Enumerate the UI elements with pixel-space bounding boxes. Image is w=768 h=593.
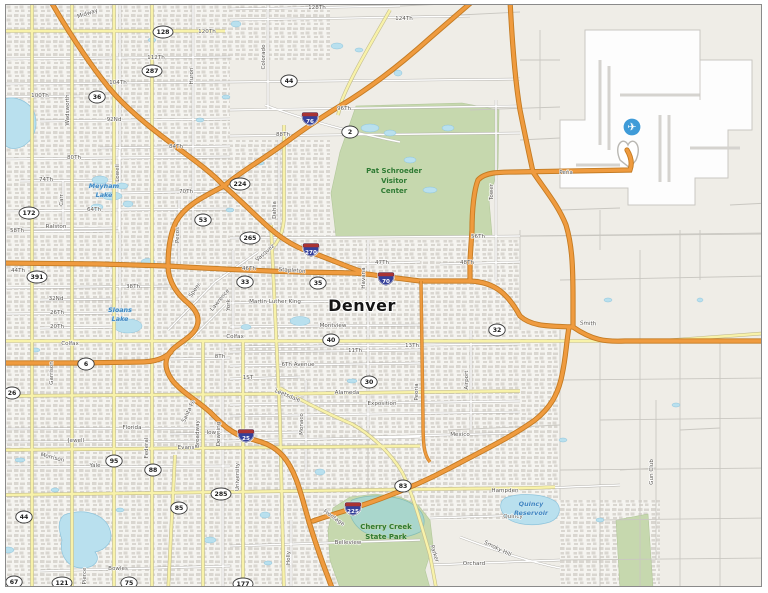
- street-label: 104Th: [109, 80, 127, 86]
- street-label: Smith: [580, 321, 597, 328]
- street-label: 44Th: [11, 268, 26, 274]
- water-label: Lake: [96, 191, 113, 199]
- street-label: 1ST: [243, 375, 254, 381]
- route-shield-85: 85: [171, 502, 187, 514]
- street-label: 58Th: [10, 228, 25, 234]
- svg-text:26: 26: [8, 390, 17, 397]
- svg-text:265: 265: [244, 235, 257, 242]
- street-label: 38Th: [126, 284, 141, 290]
- svg-text:36: 36: [93, 94, 102, 101]
- pond: [404, 157, 416, 163]
- street-label: Peña: [559, 170, 573, 176]
- map-layers: ✈120Th128Th124Th112Th104Th100Th96Th92Nd8…: [0, 0, 768, 593]
- street-label: Holly: [286, 550, 292, 565]
- pond: [260, 512, 270, 518]
- water-label: Meyham: [89, 182, 120, 190]
- svg-text:40: 40: [327, 337, 336, 344]
- street-label: 26Th: [50, 310, 65, 316]
- route-shield-265: 265: [240, 232, 260, 244]
- route-shield-172: 172: [19, 207, 39, 219]
- svg-text:30: 30: [365, 379, 374, 386]
- pond: [15, 458, 25, 462]
- route-shield-32: 32: [489, 324, 505, 336]
- svg-text:285: 285: [215, 491, 228, 498]
- pond: [559, 438, 567, 442]
- street-label: Airport: [464, 370, 470, 390]
- street-label: Colfax: [61, 341, 79, 347]
- street-label: Pecos: [175, 227, 181, 243]
- svg-text:67: 67: [10, 579, 19, 586]
- pond: [204, 537, 216, 543]
- street-label: Evans: [178, 445, 195, 451]
- route-shield-36: 36: [89, 91, 105, 103]
- street-label: Ralston: [46, 224, 67, 230]
- svg-text:88: 88: [149, 467, 158, 474]
- pond: [331, 43, 343, 49]
- water-label: Sloans: [108, 306, 132, 314]
- denver-map-canvas[interactable]: ✈120Th128Th124Th112Th104Th100Th96Th92Nd8…: [0, 0, 768, 593]
- pond: [442, 125, 454, 131]
- street-label: University: [235, 462, 241, 491]
- city-label: Denver: [328, 296, 396, 315]
- interstate-shield-25: 25: [238, 430, 254, 443]
- street-label: Lowell: [115, 164, 121, 182]
- street-label: Exposition: [367, 401, 396, 407]
- route-shield-40: 40: [323, 334, 339, 346]
- street-label: 32Nd: [49, 296, 64, 302]
- park-label: Center: [381, 187, 408, 195]
- street-label: Hampden: [491, 488, 519, 494]
- map-page: ✈120Th128Th124Th112Th104Th100Th96Th92Nd8…: [0, 0, 768, 593]
- street-label: Dahlia: [272, 201, 278, 219]
- street-label: 128Th: [308, 5, 326, 11]
- airplane-icon: ✈: [623, 118, 641, 136]
- street-label: 20Th: [50, 324, 65, 330]
- svg-text:225: 225: [347, 509, 359, 515]
- street-label: Martin Luther King: [249, 299, 301, 305]
- svg-text:25: 25: [242, 436, 250, 442]
- water-label: Quincy: [519, 500, 545, 508]
- park-label: Cherry Creek: [360, 523, 412, 531]
- pond: [347, 379, 357, 383]
- pond: [361, 124, 379, 132]
- svg-text:287: 287: [146, 68, 159, 75]
- svg-text:95: 95: [110, 458, 119, 465]
- street-label: 8Th: [215, 354, 226, 360]
- route-shield-75: 75: [121, 577, 137, 589]
- pond: [241, 325, 251, 330]
- street-label: 64Th: [87, 207, 102, 213]
- street-label: Mexico: [450, 432, 470, 438]
- route-shield-95: 95: [106, 455, 122, 467]
- route-shield-6: 6: [78, 358, 94, 370]
- street-label: 46Th: [242, 266, 257, 272]
- route-shield-88: 88: [145, 464, 161, 476]
- route-shield-121: 121: [52, 577, 72, 589]
- street-label: 80Th: [67, 155, 82, 161]
- svg-text:44: 44: [20, 514, 29, 521]
- street-label: 112Th: [147, 55, 165, 61]
- street-label: Orchard: [463, 561, 486, 567]
- street-label: Colfax: [226, 334, 244, 340]
- svg-text:35: 35: [314, 280, 323, 287]
- route-shield-2: 2: [342, 126, 358, 138]
- interstate-shield-76: 76: [302, 113, 318, 126]
- svg-text:76: 76: [306, 119, 314, 125]
- pond: [394, 70, 402, 76]
- street-label: Gun Club: [649, 459, 655, 485]
- interstate-shield-270: 270: [303, 244, 319, 257]
- route-shield-224: 224: [230, 178, 250, 190]
- street-label: Broadway: [195, 419, 201, 447]
- street-label: 56Th: [471, 234, 486, 240]
- svg-text:53: 53: [199, 217, 208, 224]
- street-label: Yale: [88, 463, 101, 469]
- street-label: Tower: [489, 183, 495, 201]
- street-label: Wadsworth: [65, 94, 71, 126]
- street-label: Bowles: [108, 566, 128, 572]
- water-label: Lake: [112, 315, 129, 323]
- route-shield-53: 53: [195, 214, 211, 226]
- route-shield-391: 391: [27, 271, 47, 283]
- street-label: 124Th: [395, 16, 413, 22]
- street-label: 92Nd: [107, 117, 122, 123]
- street-label: Garrison: [49, 361, 55, 385]
- route-shield-285: 285: [211, 488, 231, 500]
- street-label: 11Th: [348, 348, 363, 354]
- pond: [231, 21, 241, 27]
- street-label: 84Th: [169, 144, 184, 150]
- route-shield-83: 83: [395, 480, 411, 492]
- street-label: Monaco: [299, 413, 305, 435]
- svg-text:128: 128: [157, 29, 170, 36]
- route-shield-128: 128: [153, 26, 173, 38]
- street-label: Havana: [361, 267, 367, 288]
- pond: [196, 118, 204, 122]
- green-strip-southeast: [616, 514, 653, 588]
- route-shield-287: 287: [142, 65, 162, 77]
- pond: [123, 201, 133, 207]
- pond: [697, 298, 703, 302]
- svg-text:6: 6: [84, 361, 88, 368]
- route-shield-44: 44: [16, 511, 32, 523]
- street-label: Federal: [144, 437, 150, 458]
- pond: [264, 561, 272, 565]
- pond: [290, 317, 310, 326]
- street-label: Montview: [320, 323, 347, 329]
- street-label: 48Th: [460, 260, 475, 266]
- route-shield-35: 35: [310, 277, 326, 289]
- svg-text:32: 32: [493, 327, 502, 334]
- interstate-shield-70: 70: [378, 273, 394, 286]
- svg-text:83: 83: [399, 483, 408, 490]
- street-label: 47Th: [375, 260, 390, 266]
- route-shield-26: 26: [4, 387, 20, 399]
- street-label: Belleview: [335, 540, 362, 546]
- street: [20, 228, 120, 229]
- street-label: 13Th: [405, 343, 420, 349]
- svg-text:177: 177: [237, 581, 250, 588]
- svg-text:33: 33: [241, 279, 250, 286]
- water-label: Reservoir: [514, 509, 549, 517]
- street-label: Downing: [216, 421, 222, 446]
- pond: [315, 469, 325, 475]
- route-shield-33: 33: [237, 276, 253, 288]
- street-label: Jewell: [67, 438, 85, 444]
- street-label: 96Th: [337, 106, 352, 112]
- svg-text:224: 224: [234, 181, 248, 188]
- svg-text:172: 172: [23, 210, 36, 217]
- pond: [423, 187, 437, 193]
- pond: [355, 48, 363, 52]
- street-label: 88Th: [276, 132, 291, 138]
- street-label: Florida: [122, 425, 141, 431]
- street-label: Peoria: [414, 383, 420, 400]
- street-label: 6Th Avenue: [281, 362, 315, 368]
- street-label: Alameda: [335, 390, 360, 396]
- svg-text:44: 44: [285, 78, 294, 85]
- street-label: 100Th: [31, 93, 49, 99]
- pond: [604, 298, 612, 302]
- park-label: State Park: [365, 533, 407, 541]
- svg-text:70: 70: [382, 279, 390, 285]
- pond: [384, 130, 396, 136]
- park-label: Visitor: [381, 177, 407, 185]
- street-label: 120Th: [198, 29, 216, 35]
- street-label: Carr: [59, 193, 65, 206]
- interstate-shield-225: 225: [345, 503, 361, 516]
- route-shield-177: 177: [233, 578, 253, 590]
- svg-text:391: 391: [31, 274, 44, 281]
- street-label: 74Th: [39, 177, 54, 183]
- pond: [672, 403, 680, 407]
- street-label: 70Th: [179, 189, 194, 195]
- pond: [226, 208, 234, 212]
- pond: [222, 95, 230, 99]
- svg-text:85: 85: [175, 505, 184, 512]
- route-shield-30: 30: [361, 376, 377, 388]
- pond: [116, 508, 124, 512]
- park-label: Pat Schroeder: [366, 167, 422, 175]
- route-shield-44: 44: [281, 75, 297, 87]
- svg-text:2: 2: [348, 129, 352, 136]
- pond: [51, 488, 59, 492]
- pond: [596, 518, 604, 522]
- street-label: Colorado: [261, 44, 267, 70]
- street-label: York: [226, 298, 232, 311]
- svg-text:270: 270: [305, 250, 317, 256]
- street-label: Pierce: [82, 567, 88, 584]
- street-label: Huron: [189, 67, 195, 84]
- svg-text:✈: ✈: [627, 121, 636, 134]
